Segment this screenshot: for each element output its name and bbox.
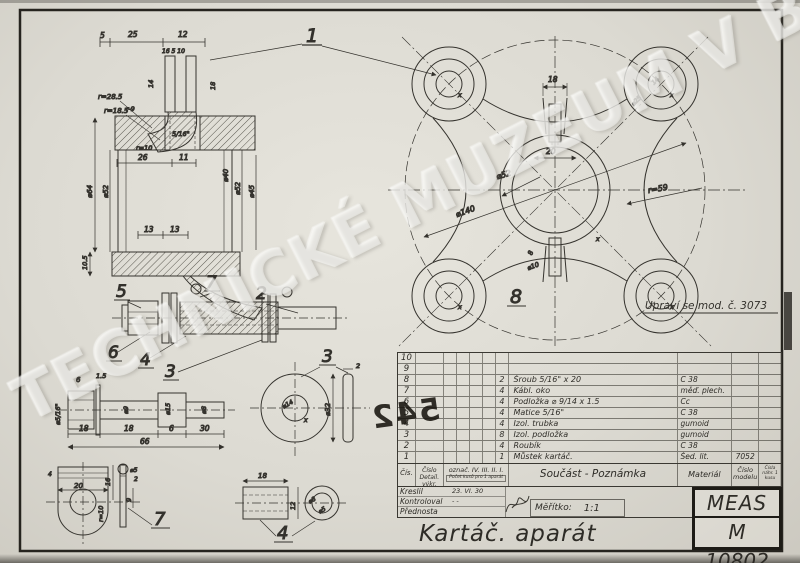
dim: 12 [178,30,188,39]
row-no: 10 [398,353,416,363]
row-qty: 4 [496,397,510,407]
callout-4: 4 [140,350,151,370]
callout-1: 1 [306,25,318,47]
scan-top-shadow [0,0,800,3]
signature-block: Kreslil23. VI. 30 Kontroloval- - Přednos… [397,487,505,517]
dim: 25 [128,30,138,39]
dim: 2 [356,362,360,370]
dim: ⌀25 [630,94,643,107]
row-name [509,353,677,363]
row-qty [496,353,510,363]
row-qty: 4 [496,408,510,418]
row-qty: 4 [496,441,510,451]
row-material: C 38 [678,408,733,418]
header-cislo-modelu: Číslo modelu [732,464,759,486]
row-material: gumoid [678,430,733,440]
row-name: Roubík [509,441,677,451]
company-name: MEAS [695,490,779,518]
callout-7: 7 [206,273,217,293]
dim: 13 [144,225,154,234]
dim: 6 [169,424,174,433]
dim: ⌀10 [526,260,540,272]
dim: ⌀9 [122,406,130,414]
kreslil-date: 23. VI. 30 [452,487,483,496]
table-row: 38Izol. podložkagumoid [398,430,781,441]
dim: ⌀5/16" [54,403,62,425]
header-cis: Čís. [398,464,416,486]
row-model: 7052 [732,452,759,463]
dim: 5 [100,31,105,40]
parts-table: 10 9 82Šroub 5/16" x 20C 38 74Kábl. okom… [397,352,782,464]
dim: ⌀52 [234,181,242,195]
row-material: měď. plech. [678,386,733,396]
row-no: 1 [398,452,416,463]
dim: r=10 [97,506,105,522]
table-row: 24RoubíkC 38 [398,441,781,452]
callout-8: 8 [510,286,522,308]
dim: 16 [104,478,112,486]
row-model [732,364,759,374]
view-disc-detail: ⌀14 x ⌀32 2 3 [250,347,370,456]
dim: 66 [140,437,150,446]
dim: 16 5 10 [162,48,185,55]
row-model [732,408,759,418]
row-model [732,441,759,451]
row-model [732,386,759,396]
dim: ⌀40 [222,168,230,182]
view-tube-detail: 18 12 ⌀8 ⌀5 4 [235,472,348,544]
row-model [732,397,759,407]
dim: 30 [200,424,210,433]
scale-value: 1:1 [572,503,600,514]
row-name: Můstek kartáč. [509,452,677,463]
dim: r=10 [136,144,152,152]
dim: 6 [76,376,81,384]
dim: 20 [74,482,83,490]
header-oznac: označ. IV. III. II. I.Počet kusů pro 1 a… [444,464,510,486]
view-bracket-detail: 20 4 ⌀5 2 16 r=10 9 7 [46,462,170,544]
dim: 4 [48,471,52,478]
dim: ⌀14 [281,399,294,411]
dim: ⌀45 [248,184,256,198]
scan-bottom-shadow [0,554,800,563]
dim: 20 [546,147,556,156]
row-material: Šed. lit. [678,452,733,463]
row-name: Podložka ⌀ 9/14 x 1.5 [509,397,677,407]
row-qty [496,364,510,374]
row-no: 2 [398,441,416,451]
row-material: C 38 [678,441,733,451]
scan-edge-artifact [784,292,792,350]
view-shaft-detail: 6 1.5 ⌀5/16" ⌀9 ⌀15 ⌀8 18 18 6 30 66 [54,372,235,447]
callout-2: 2 [256,284,267,304]
dim: 13 [170,225,180,234]
callout-3-disc: 3 [322,347,333,367]
header-soucast: Součást - Poznámka [509,464,677,486]
dim: ⌀64 [86,185,94,198]
header-cisla-nahr: Čísla náhr. 1 kusu [759,464,781,486]
dim: 12 [289,502,297,510]
prednosta-row: Přednosta [398,507,505,517]
company-box: MEAS M 10802 [692,487,782,550]
table-row: 74Kábl. okoměď. plech. [398,386,781,397]
dim: 8 [526,250,535,257]
dim: 18 [548,75,558,84]
title-strip: Kartáč. aparát [397,517,692,550]
note-text: Upraví se mod. č. 3073 [645,300,767,312]
row-material [678,353,733,363]
table-row: 11Můstek kartáč.Šed. lit.7052 [398,452,781,463]
row-qty: 8 [496,430,510,440]
dim: r=59 [647,183,668,195]
dim: r-9 [126,105,135,113]
callout-1-group: 1 [210,25,436,75]
dim: ⌀52 [102,184,110,198]
row-no: 9 [398,364,416,374]
dim: 11 [179,153,189,162]
view-bolt-assembly [112,284,348,343]
callout-7-bracket: 7 [154,509,166,530]
header-material: Materiál [678,464,733,486]
row-qty: 4 [496,419,510,429]
table-row: 10 [398,353,781,364]
row-model [732,430,759,440]
row-name: Izol. podložka [509,430,677,440]
row-name: Izol. trubka [509,419,677,429]
dim: 18 [258,472,267,480]
scale-label: Měřítko: [531,503,572,513]
row-qty: 1 [496,452,510,463]
parts-table-header: Čís. ČísloDetail. výkr. označ. IV. III. … [397,464,782,487]
dim: 26 [138,153,148,162]
row-material [678,364,733,374]
dim: ⌀32 [324,402,332,416]
row-material: C 38 [678,375,733,385]
dim: ⌀15 [164,403,172,415]
dim: ⌀140 [454,204,476,219]
row-model [732,375,759,385]
drawing-number: M 10802 [695,518,779,547]
row-name: Matice 5/16" [509,408,677,418]
callout-3: 3 [165,362,176,382]
dim: 18 [79,424,89,433]
view-top-left-section: 5 25 12 16 5 10 14 18 r=28.5 r=18.5 r-9 … [98,30,255,167]
row-name [509,364,677,374]
dim: 5/16" [172,130,190,138]
callout-6: 6 [108,343,119,363]
revision-note: Upraví se mod. č. 3073 [643,300,778,313]
dim: ⌀5 [317,506,327,516]
kontroloval-row: Kontroloval- - [398,497,505,507]
table-row: 44Izol. trubkagumoid [398,419,781,430]
surface-mark: x [457,92,462,99]
header-cislo-detail: ČísloDetail. výkr. [416,464,444,486]
dim: 14 [147,80,155,88]
surface-mark: x [595,236,600,243]
dim: 10.5 [81,256,89,270]
dim: r=28.5 [98,93,123,101]
scale-box: Měřítko: 1:1 [530,499,625,517]
dim: 14 [650,76,660,86]
table-row: 9 [398,364,781,375]
row-name: Šroub 5/16" x 20 [509,375,677,385]
dim: 18 [209,82,217,90]
callout-4-tube: 4 [277,523,288,544]
row-model [732,419,759,429]
surface-mark: x [457,304,462,311]
dim: ⌀8 [200,406,208,414]
table-row: 82Šroub 5/16" x 20C 38 [398,375,781,386]
drawing-sheet: 5 25 12 16 5 10 14 18 r=28.5 r=18.5 r-9 … [0,0,800,563]
row-material: gumoid [678,419,733,429]
table-row: 64Podložka ⌀ 9/14 x 1.5Cc [398,397,781,408]
row-name: Kábl. oko [509,386,677,396]
kreslil-row: Kreslil23. VI. 30 [398,487,505,497]
dim: 1.5 [96,372,106,380]
callout-5: 5 [116,282,127,302]
table-row: 54Matice 5/16"C 38 [398,408,781,419]
row-qty: 4 [496,386,510,396]
row-material: Cc [678,397,733,407]
surface-mark: x [669,92,674,99]
dim: 9 [125,498,133,502]
dim: 2 [134,476,138,483]
drawing-title: Kartáč. aparát [397,518,692,547]
dim: ⌀8 [307,496,317,506]
row-qty: 2 [496,375,510,385]
dim: 18 [124,424,134,433]
row-model [732,353,759,363]
dim: ⌀5 [130,467,138,474]
row-no: 8 [398,375,416,385]
surface-mark: x [303,417,308,424]
dim: ⌀52 [495,169,512,182]
